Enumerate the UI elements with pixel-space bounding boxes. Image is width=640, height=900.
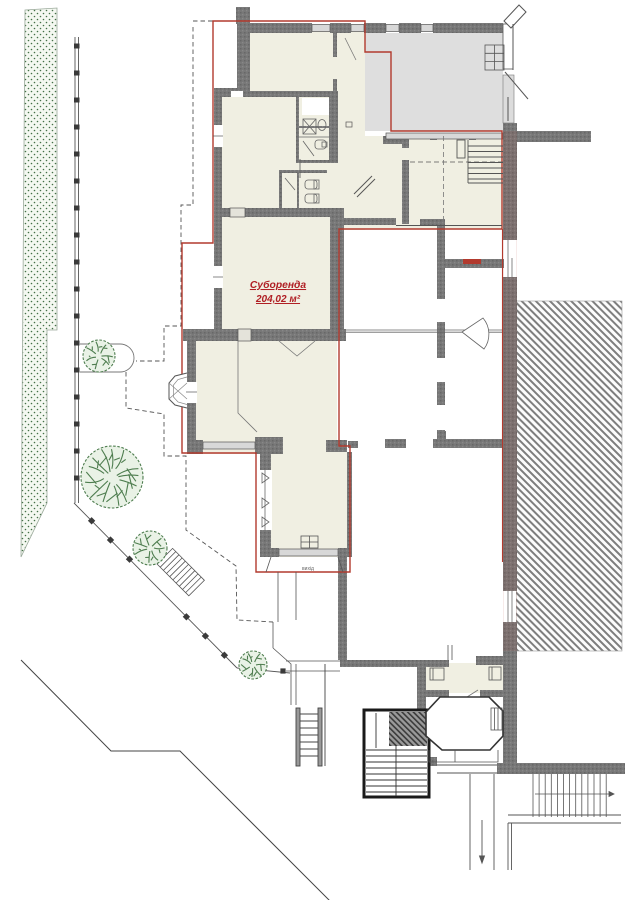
svg-text:вихід: вихід <box>302 566 314 572</box>
svg-text:204,02 м²: 204,02 м² <box>255 294 301 305</box>
svg-text:Суборенда: Суборенда <box>250 279 307 291</box>
